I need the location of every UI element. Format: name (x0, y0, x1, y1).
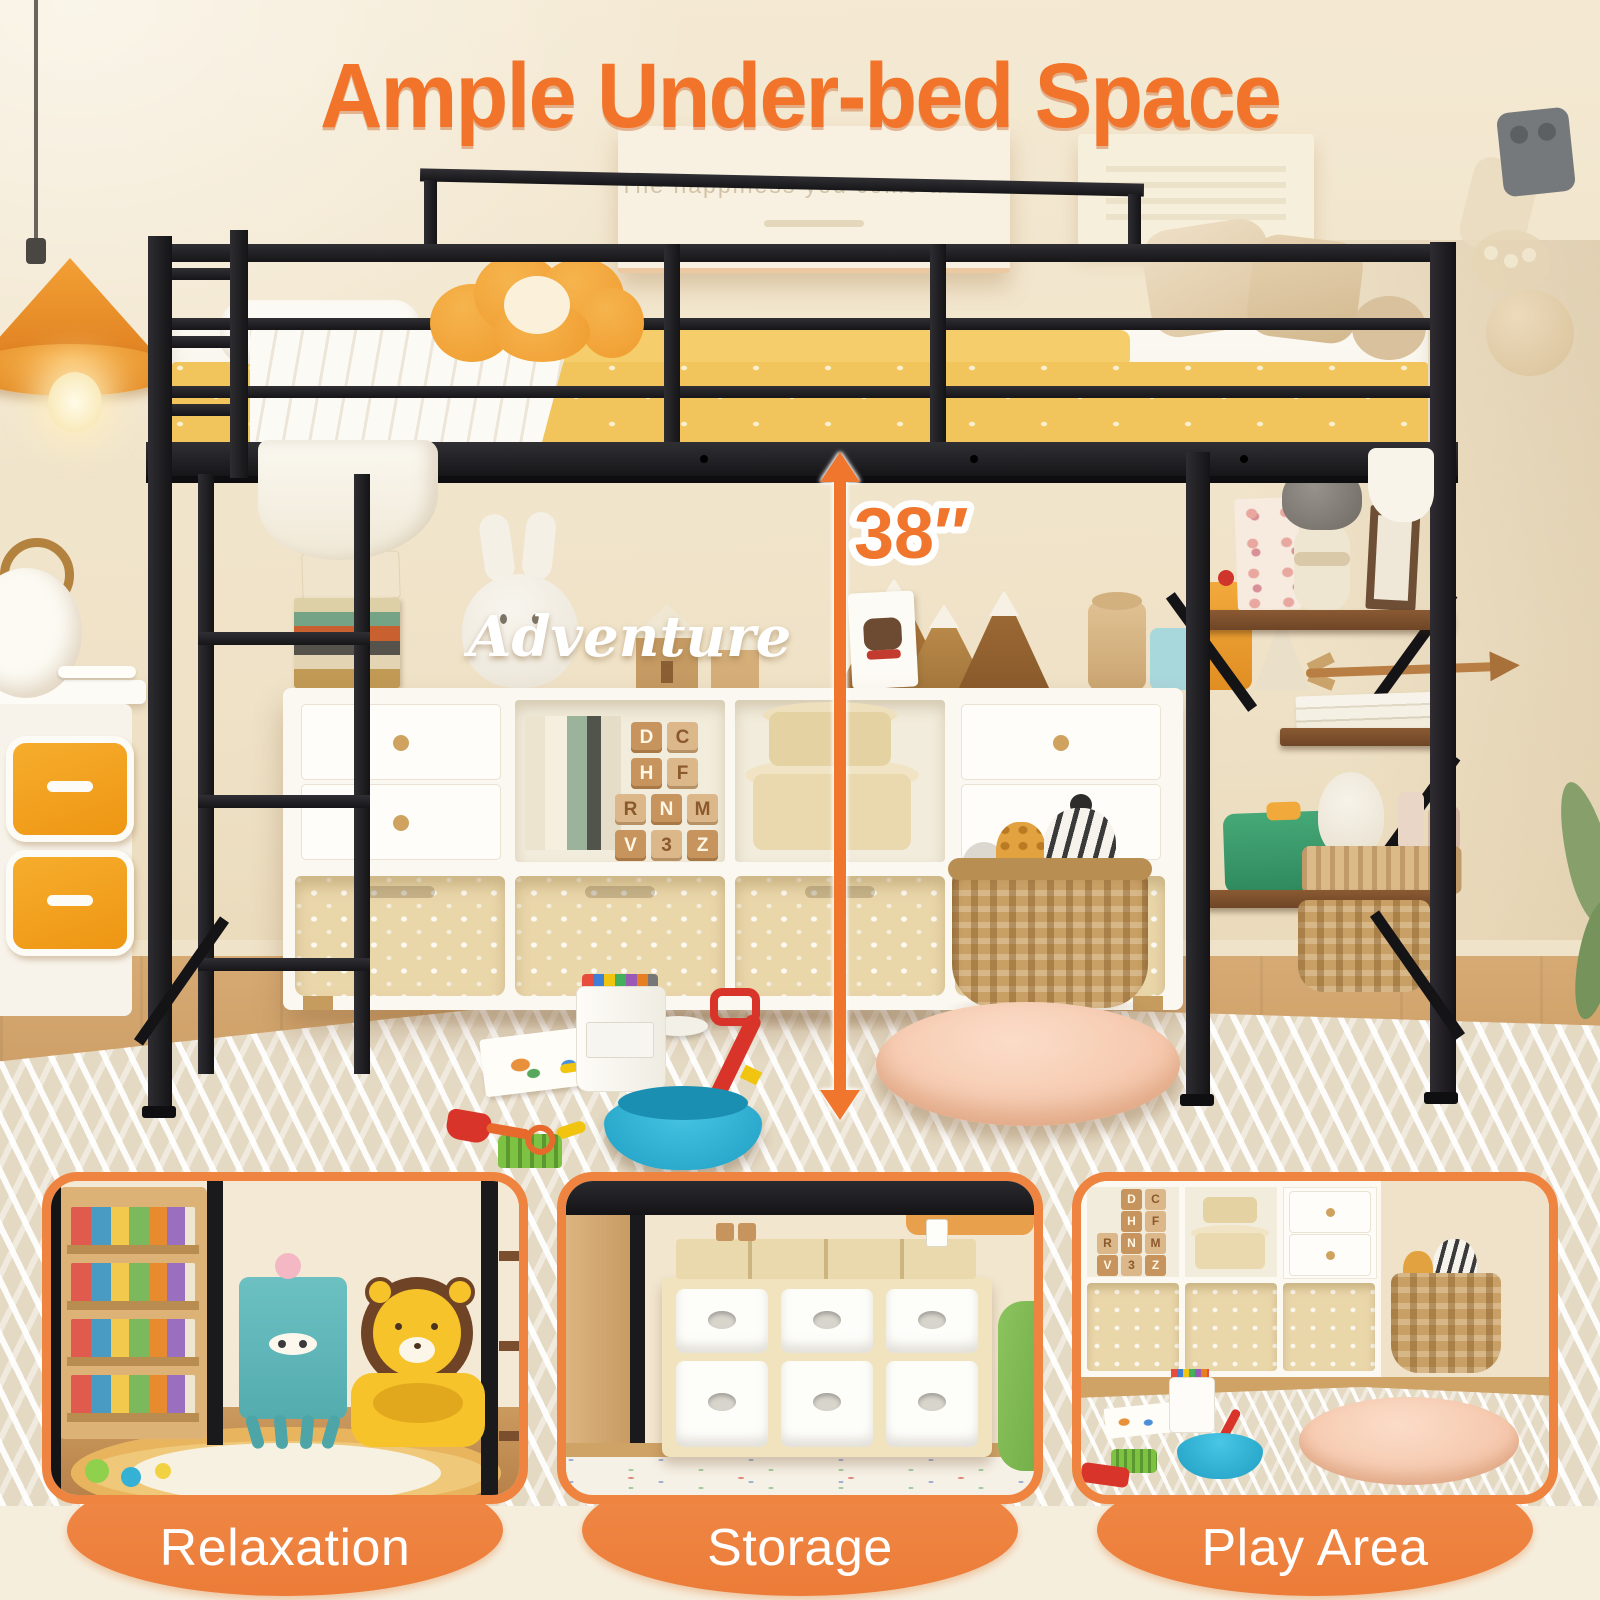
shelf-edge (499, 1431, 519, 1441)
canister-lid (1092, 592, 1142, 610)
shelf-board (1280, 728, 1448, 746)
lion-face (373, 1289, 461, 1377)
shelf-edge (499, 1341, 519, 1351)
drawer-knob (393, 735, 409, 751)
storage-bin (1185, 1283, 1277, 1371)
shelf-edge (499, 1251, 519, 1261)
letter-block: Z (1145, 1255, 1166, 1276)
toy-bowl (604, 1086, 762, 1170)
bed-foot (142, 1106, 176, 1118)
shelf-slat (67, 1245, 199, 1254)
bed-foot (1424, 1092, 1458, 1104)
floor-cushion (876, 1002, 1180, 1126)
guardrail-mid (148, 318, 1454, 330)
badge-label: Play Area (1097, 1518, 1533, 1578)
letter-block: Z (687, 830, 718, 861)
drawer-handle (47, 895, 93, 906)
mini-block (738, 1223, 756, 1241)
cabinet-drawer (6, 850, 134, 956)
hat-box (1203, 1197, 1257, 1223)
hat-box (1195, 1233, 1265, 1269)
book-cell: D C H F R N M V 3 Z (515, 700, 725, 862)
panel-storage (557, 1172, 1043, 1504)
octopus-cabinet (239, 1277, 347, 1419)
letter-block: F (1145, 1211, 1166, 1232)
bunny-ear (521, 511, 558, 582)
letter-block: M (1145, 1233, 1166, 1254)
letter-block: D (1121, 1189, 1142, 1210)
white-bin (676, 1289, 768, 1353)
shelf-slat (67, 1301, 199, 1310)
adventure-sign: Adventure (468, 604, 858, 670)
cabinet-drawer (6, 736, 134, 842)
bed-support-post (1186, 452, 1210, 1100)
badge-label: Relaxation (67, 1518, 503, 1578)
ladder-rung (198, 795, 370, 808)
cabinet-pupil (299, 1340, 307, 1348)
lotion-bottle (1398, 792, 1424, 850)
shelf-slat (67, 1413, 199, 1422)
bed-leg-front-right (1430, 242, 1456, 1098)
woven-basket-shelf (1298, 900, 1430, 992)
letter-block: N (651, 794, 682, 825)
letter-block: N (1121, 1233, 1142, 1254)
blanket-drape-right (1368, 448, 1434, 522)
plush-gnome (1282, 464, 1362, 612)
shelf-slat (67, 1357, 199, 1366)
toy-storage-unit (662, 1277, 992, 1457)
drawer-cell (295, 700, 505, 862)
lion-muzzle (399, 1337, 435, 1363)
flower-petal (580, 288, 644, 358)
letter-block: R (1097, 1233, 1118, 1254)
toy-organizer (676, 1239, 976, 1279)
white-bin (676, 1361, 768, 1447)
ladder-rung (198, 632, 370, 645)
shovel-grip (710, 988, 760, 1026)
play-ball (85, 1459, 109, 1483)
storage-bin (1283, 1283, 1375, 1371)
white-bin (886, 1361, 978, 1447)
shovel-handle (486, 1122, 531, 1139)
ladder-rail (51, 1181, 61, 1495)
ladder-rung (198, 958, 370, 971)
round-pillow (1486, 290, 1574, 376)
storage-bin (1087, 1283, 1179, 1371)
bin-handle (813, 1311, 841, 1329)
bed-leg (207, 1181, 223, 1445)
cabinet-eyes (269, 1333, 317, 1355)
play-mat (566, 1457, 1034, 1495)
letter-block: H (631, 758, 662, 789)
drawer-knob (1053, 735, 1069, 751)
bin-handle (585, 886, 655, 898)
beam-bolt (1240, 455, 1248, 463)
letter-block: 3 (1121, 1255, 1142, 1276)
play-ball (121, 1467, 141, 1487)
gnome-body (1294, 522, 1350, 612)
mini-bunny-toy (275, 1253, 301, 1279)
storage-bin (295, 876, 505, 996)
page-title: Ample Under-bed Space (48, 44, 1552, 149)
letter-block: H (1121, 1211, 1142, 1232)
play-ball (155, 1463, 171, 1479)
lion-eye (395, 1323, 402, 1330)
cube-books (525, 716, 621, 850)
side-cabinet (0, 680, 150, 1020)
bin-handle (708, 1311, 736, 1329)
gnome-scarf (1294, 552, 1350, 566)
paw-toe (1504, 254, 1518, 268)
book-row (71, 1319, 195, 1359)
drawer-knob (1326, 1208, 1335, 1217)
shovel-band (740, 1065, 762, 1085)
letter-block: D (631, 722, 662, 753)
paper-roll (58, 666, 136, 678)
measurement-label: 38″ (846, 484, 1066, 584)
drawer-knob (1326, 1251, 1335, 1260)
paw-toe (1522, 248, 1536, 262)
bin-handle (918, 1311, 946, 1329)
bear-scarf (867, 649, 901, 660)
mini-block (716, 1223, 734, 1241)
arrow-head-down (820, 1090, 860, 1120)
bed-beam (566, 1181, 1034, 1215)
wall-art-subline (764, 220, 864, 227)
book-row (71, 1207, 195, 1247)
back-guardrail-post (424, 180, 437, 248)
measurement-value: 38″ (854, 494, 969, 574)
lamp-cord (34, 0, 38, 246)
letter-block: 3 (651, 830, 682, 861)
bear-face (863, 617, 903, 651)
white-bin (781, 1361, 873, 1447)
mountain-snowcap (989, 590, 1019, 616)
sun-rug-center (131, 1443, 441, 1503)
bin-handle (365, 886, 435, 898)
toy-basket (1391, 1273, 1501, 1373)
shovel-scoop (444, 1108, 493, 1145)
shelf-board (1200, 610, 1454, 630)
guardrail-low (148, 386, 1454, 398)
bin-handle (708, 1393, 736, 1411)
letter-block: R (615, 794, 646, 825)
badge-label: Storage (582, 1518, 1018, 1578)
drawer-face (1289, 1234, 1371, 1276)
toy-basket (952, 866, 1148, 1008)
beam-bolt (700, 455, 708, 463)
bed-foot (1180, 1094, 1214, 1106)
guardrail-top (148, 244, 1454, 262)
white-bin (781, 1289, 873, 1353)
bin-handle (918, 1393, 946, 1411)
drawer-face (961, 704, 1161, 780)
wood-panel (566, 1215, 630, 1461)
letter-block: F (667, 758, 698, 789)
book-pile (1295, 691, 1446, 732)
arrow-shaft (834, 478, 846, 1094)
letter-block: C (1145, 1189, 1166, 1210)
ladder-rail (198, 474, 214, 1074)
mini-cabinet: D C H F R N M V 3 Z (1081, 1181, 1381, 1377)
book-row (71, 1263, 195, 1303)
flower-pillow (430, 258, 644, 364)
book-row (71, 1375, 195, 1415)
lamp-neck (26, 238, 46, 264)
lion-nose (414, 1343, 421, 1349)
cabinet-foot (303, 996, 333, 1010)
drawer-face (301, 704, 501, 780)
bin-handle (813, 1393, 841, 1411)
drawer-handle (47, 781, 93, 792)
cup-label (586, 1022, 654, 1058)
arrow-tip (1489, 650, 1520, 681)
basket-rim (948, 858, 1152, 880)
block-cell: D C H F R N M V 3 Z (1087, 1187, 1179, 1277)
ladder-rail (354, 474, 370, 1074)
paw-toe (1484, 246, 1498, 260)
bowl-inner (618, 1086, 748, 1120)
crayon-cup (576, 986, 664, 1090)
beam-bolt (970, 455, 978, 463)
pencil-cup (926, 1219, 948, 1247)
letter-block: V (1097, 1255, 1118, 1276)
canister (1088, 602, 1146, 690)
flower-center (504, 276, 570, 334)
lion-chair-hollow (373, 1383, 463, 1423)
lion-chair (351, 1277, 485, 1447)
crayon-cup (1169, 1377, 1215, 1433)
panel-relaxation (42, 1172, 528, 1504)
box-cell (1185, 1187, 1277, 1277)
bed-leg (630, 1215, 645, 1461)
bean-chair (998, 1301, 1043, 1471)
letter-block: V (615, 830, 646, 861)
frame-inner (1374, 515, 1412, 601)
bed-leg-front-left (148, 236, 172, 1112)
headboard-post (230, 230, 248, 478)
floor-cushion (1299, 1397, 1519, 1485)
lion-eye (431, 1323, 438, 1330)
cabinet-pupil (278, 1340, 286, 1348)
letter-block: C (667, 722, 698, 753)
letter-block: M (687, 794, 718, 825)
white-bin (886, 1289, 978, 1353)
drawer-knob (393, 815, 409, 831)
lamp-bulb (48, 372, 102, 432)
bin-tag (1266, 801, 1301, 820)
product-image: The happiness you come across (0, 0, 1600, 1600)
panel-play-area: D C H F R N M V 3 Z (1072, 1172, 1558, 1504)
canister-bobble (1218, 570, 1234, 586)
mountain-snowcap (929, 604, 959, 628)
drawer-face (1289, 1191, 1371, 1233)
back-guardrail-post (1128, 194, 1141, 248)
drawer-cell (1283, 1187, 1377, 1279)
